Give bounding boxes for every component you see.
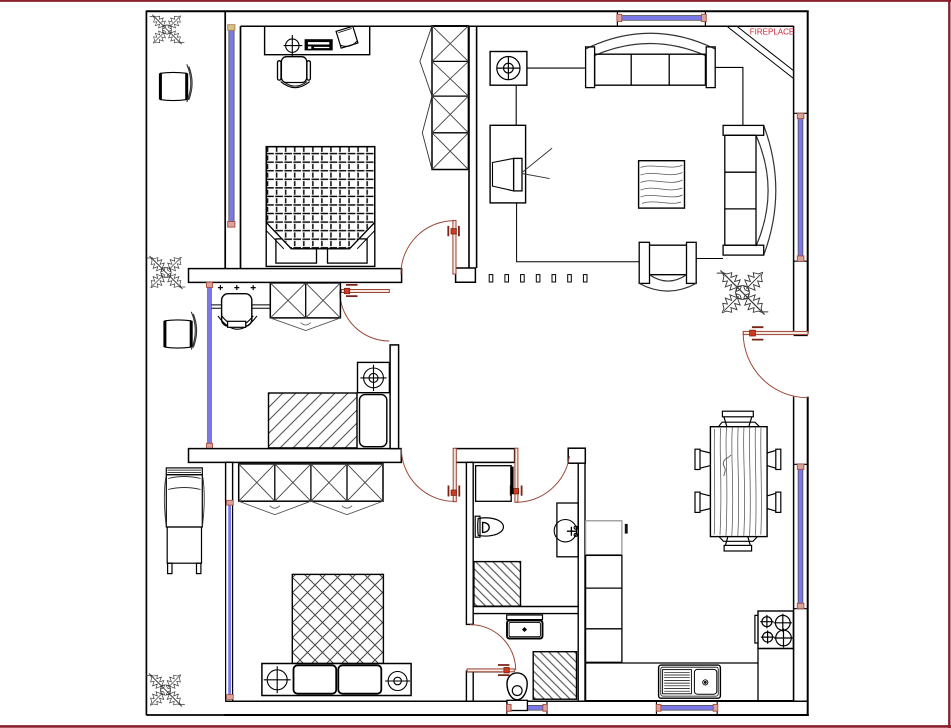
svg-text:FIREPLACE: FIREPLACE xyxy=(750,28,794,37)
